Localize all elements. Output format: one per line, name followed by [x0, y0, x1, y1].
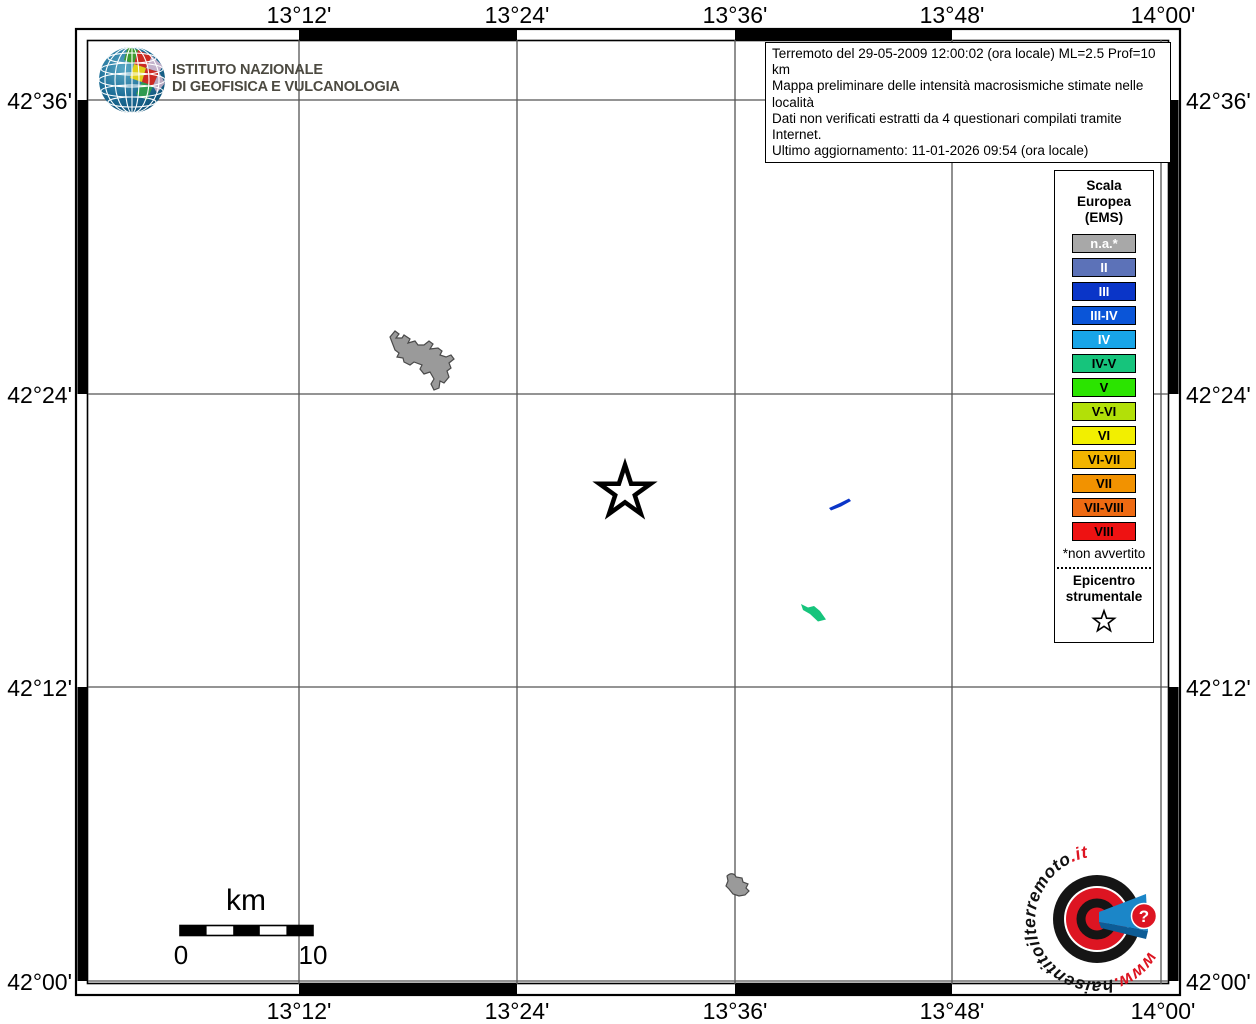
- legend-title-line3: (EMS): [1055, 210, 1153, 226]
- legend-swatches: n.a.* II III III-IV IV IV-V V V-VI VI VI…: [1055, 234, 1153, 541]
- axis-label-top-1: 13°12': [267, 2, 332, 29]
- legend-swatch-viii: VIII: [1072, 522, 1136, 541]
- intensity-legend: Scala Europea (EMS) n.a.* II III III-IV …: [1054, 170, 1154, 643]
- axis-label-bottom-3: 13°36': [703, 998, 768, 1024]
- ingv-name-line2: DI GEOFISICA E VULCANOLOGIA: [172, 79, 400, 96]
- axis-label-bottom-2: 13°24': [485, 998, 550, 1024]
- axis-label-left-1: 42°36': [0, 88, 72, 115]
- legend-swatch-iv: IV: [1072, 330, 1136, 349]
- legend-swatch-v: V: [1072, 378, 1136, 397]
- ingv-name-line1: ISTITUTO NAZIONALE: [172, 62, 400, 79]
- legend-swatch-vii-viii: VII-VIII: [1072, 498, 1136, 517]
- legend-swatch-vii: VII: [1072, 474, 1136, 493]
- ingv-wordmark: ISTITUTO NAZIONALE DI GEOFISICA E VULCAN…: [172, 62, 400, 96]
- legend-swatch-iii: III: [1072, 282, 1136, 301]
- info-line-map: Mappa preliminare delle intensità macros…: [772, 78, 1164, 110]
- legend-divider: [1057, 567, 1151, 569]
- axis-label-right-1: 42°36': [1186, 88, 1251, 115]
- axis-label-bottom-1: 13°12': [267, 998, 332, 1024]
- legend-swatch-vi: VI: [1072, 426, 1136, 445]
- info-line-event: Terremoto del 29-05-2009 12:00:02 (ora l…: [772, 46, 1164, 78]
- legend-swatch-ii: II: [1072, 258, 1136, 277]
- axis-label-top-3: 13°36': [703, 2, 768, 29]
- legend-epicenter-line2: strumentale: [1055, 589, 1153, 605]
- legend-swatch-iv-v: IV-V: [1072, 354, 1136, 373]
- scale-bar-min: 0: [174, 940, 188, 971]
- legend-epicenter-label: Epicentro strumentale: [1055, 573, 1153, 605]
- axis-label-left-2: 42°24': [0, 382, 72, 409]
- axis-label-top-5: 14°00': [1131, 2, 1196, 29]
- axis-label-bottom-4: 13°48': [920, 998, 985, 1024]
- axis-label-left-3: 42°12': [0, 675, 72, 702]
- legend-footnote: *non avvertito: [1055, 546, 1153, 561]
- axis-label-top-4: 13°48': [920, 2, 985, 29]
- legend-title: Scala Europea (EMS): [1055, 178, 1153, 226]
- legend-title-line2: Europea: [1055, 194, 1153, 210]
- macroseismic-intensity-map: ? www.haisentitoilterremoto.it 13°12' 13…: [0, 0, 1256, 1024]
- axis-label-left-4: 42°00': [0, 969, 72, 996]
- axis-label-right-4: 42°00': [1186, 969, 1251, 996]
- scale-bar-unit: km: [226, 884, 266, 918]
- info-line-updated: Ultimo aggiornamento: 11-01-2026 09:54 (…: [772, 143, 1164, 159]
- legend-epicenter-line1: Epicentro: [1055, 573, 1153, 589]
- axis-label-right-3: 42°12': [1186, 675, 1251, 702]
- question-mark: ?: [1139, 907, 1149, 926]
- info-line-data: Dati non verificati estratti da 4 questi…: [772, 111, 1164, 143]
- legend-swatch-na: n.a.*: [1072, 234, 1136, 253]
- axis-label-bottom-5: 14°00': [1131, 998, 1196, 1024]
- axis-label-top-2: 13°24': [485, 2, 550, 29]
- legend-title-line1: Scala: [1055, 178, 1153, 194]
- scale-bar: [180, 926, 313, 936]
- legend-swatch-iii-iv: III-IV: [1072, 306, 1136, 325]
- ingv-globe-logo: [99, 47, 165, 113]
- legend-swatch-v-vi: V-VI: [1072, 402, 1136, 421]
- legend-swatch-vi-vii: VI-VII: [1072, 450, 1136, 469]
- legend-star-icon: [1055, 608, 1153, 639]
- axis-label-right-2: 42°24': [1186, 382, 1251, 409]
- event-info-box: Terremoto del 29-05-2009 12:00:02 (ora l…: [765, 42, 1171, 163]
- scale-bar-max: 10: [299, 940, 328, 971]
